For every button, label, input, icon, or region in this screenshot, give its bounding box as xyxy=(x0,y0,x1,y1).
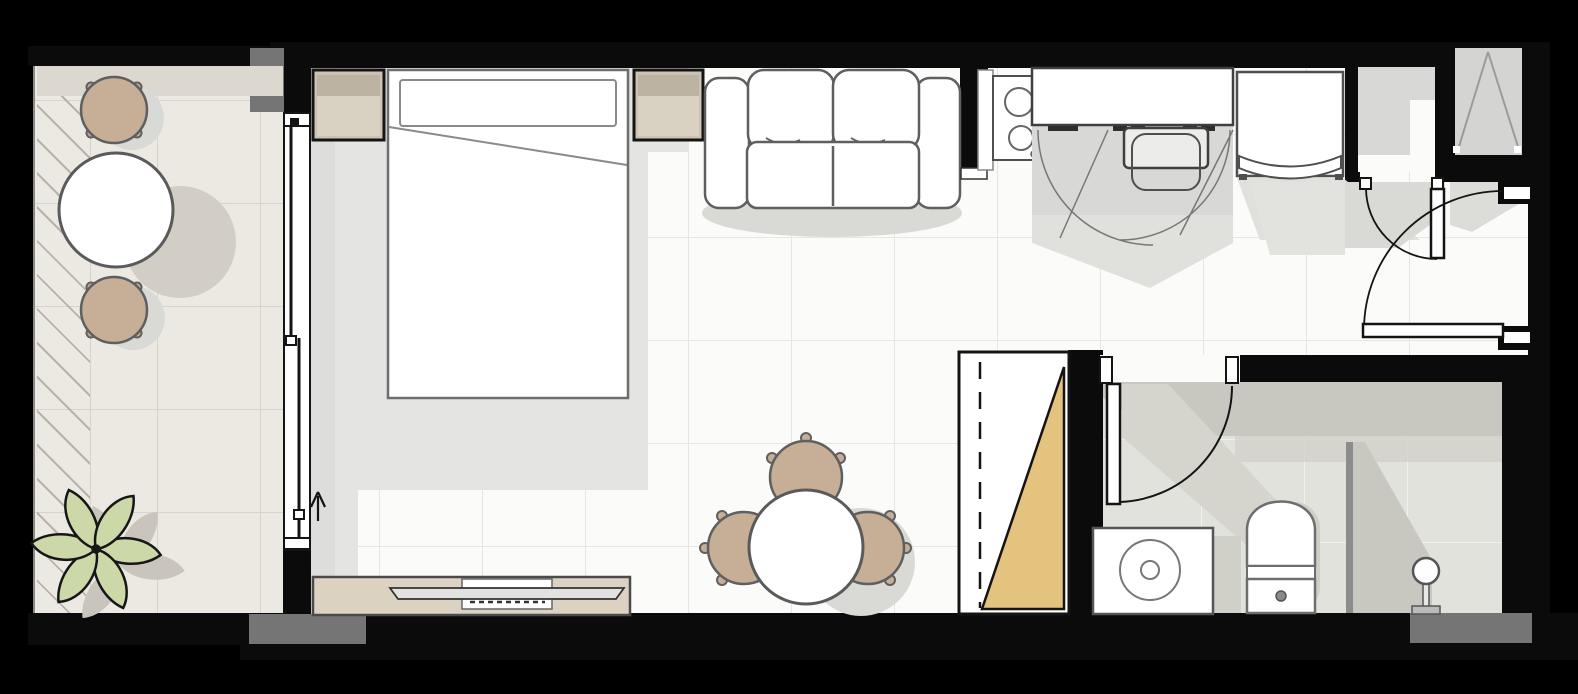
bistro-chair-top-icon xyxy=(81,77,147,143)
sofa-icon xyxy=(705,70,960,208)
cabinet-shadow xyxy=(1032,215,1233,288)
floor-plan xyxy=(0,0,1578,694)
washer-shadow xyxy=(1213,536,1241,613)
closet-highlight xyxy=(1358,155,1410,172)
shower-screen-icon xyxy=(1346,442,1353,613)
dining-table-icon xyxy=(749,490,863,604)
window-shadow-strip xyxy=(311,68,335,614)
pillow-icon xyxy=(400,80,616,126)
toilet-icon xyxy=(1247,502,1315,614)
sliding-door-icon xyxy=(284,113,310,550)
counter-return xyxy=(978,70,993,170)
counter-icon xyxy=(1032,68,1233,125)
bistro-table-icon xyxy=(59,153,173,267)
closet-highlight xyxy=(1410,100,1435,172)
screen-shadow xyxy=(1353,442,1432,613)
corridor-shadow xyxy=(1250,182,1345,255)
wardrobe-icon xyxy=(959,352,1069,614)
nightstand-right-icon xyxy=(634,70,703,140)
fridge-icon xyxy=(1237,72,1343,180)
tv-icon xyxy=(390,588,624,599)
tv-console-icon xyxy=(313,577,630,615)
balcony-wall-shadow xyxy=(37,66,283,96)
washing-machine-icon xyxy=(1093,528,1213,614)
double-bed-icon xyxy=(388,70,628,398)
duct-shaft-icon xyxy=(1453,48,1522,155)
bistro-chair-bottom-icon xyxy=(81,277,147,343)
nightstand-left-icon xyxy=(313,70,384,140)
plan-symbols xyxy=(0,0,1578,694)
